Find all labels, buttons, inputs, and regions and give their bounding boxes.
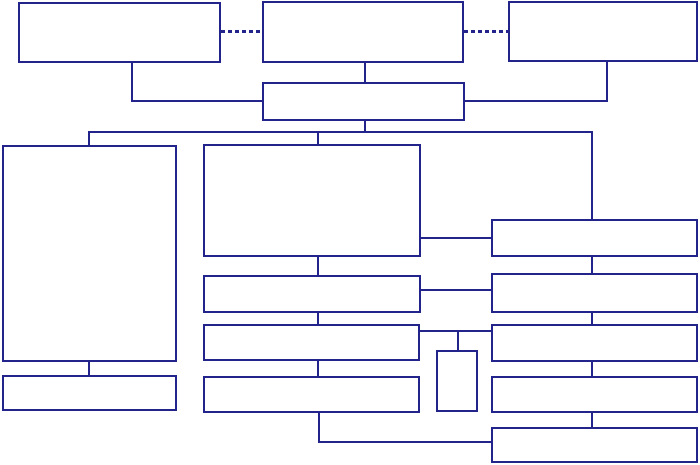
bus-line [88, 131, 593, 133]
small-box-drop [457, 331, 459, 351]
right-box-1 [491, 219, 698, 257]
bus-drop-left [88, 131, 90, 146]
mid-right-link-1 [420, 237, 492, 239]
top1-elbow [131, 100, 263, 102]
top-box-2 [262, 1, 464, 63]
left-bottom-box [2, 375, 177, 411]
top1-drop [131, 63, 133, 102]
dashed-link-2 [464, 30, 508, 33]
right-tick-1 [591, 256, 593, 274]
top-box-1 [18, 2, 221, 63]
right-tick-4 [591, 412, 593, 428]
mid-box-1 [203, 144, 421, 257]
right-box-4 [491, 376, 698, 413]
dashed-link-1 [221, 30, 262, 33]
mid-elbow-vert [318, 412, 320, 443]
small-box [436, 350, 478, 412]
top2-drop [364, 63, 366, 83]
flowchart-canvas [0, 0, 700, 465]
bus-drop-right [591, 131, 593, 220]
mid-right-link-2 [420, 289, 492, 291]
right-box-5 [491, 427, 698, 463]
bus-drop-mid [317, 131, 319, 145]
top3-elbow [464, 100, 607, 102]
right-box-3 [491, 324, 698, 362]
mid-tick-1 [317, 256, 319, 276]
mid-elbow-horiz [318, 441, 493, 443]
mid-right-link-3 [419, 330, 492, 332]
mid-box-4 [203, 376, 420, 413]
right-box-2 [491, 273, 698, 313]
mid-box-2 [203, 275, 421, 313]
junction-box [262, 82, 465, 121]
top3-drop [606, 62, 608, 102]
mid-tick-3 [317, 360, 319, 377]
left-tick [88, 361, 90, 376]
left-tall-box [2, 145, 177, 362]
mid-box-3 [203, 324, 420, 361]
right-tick-3 [591, 361, 593, 377]
top-box-3 [508, 1, 698, 62]
